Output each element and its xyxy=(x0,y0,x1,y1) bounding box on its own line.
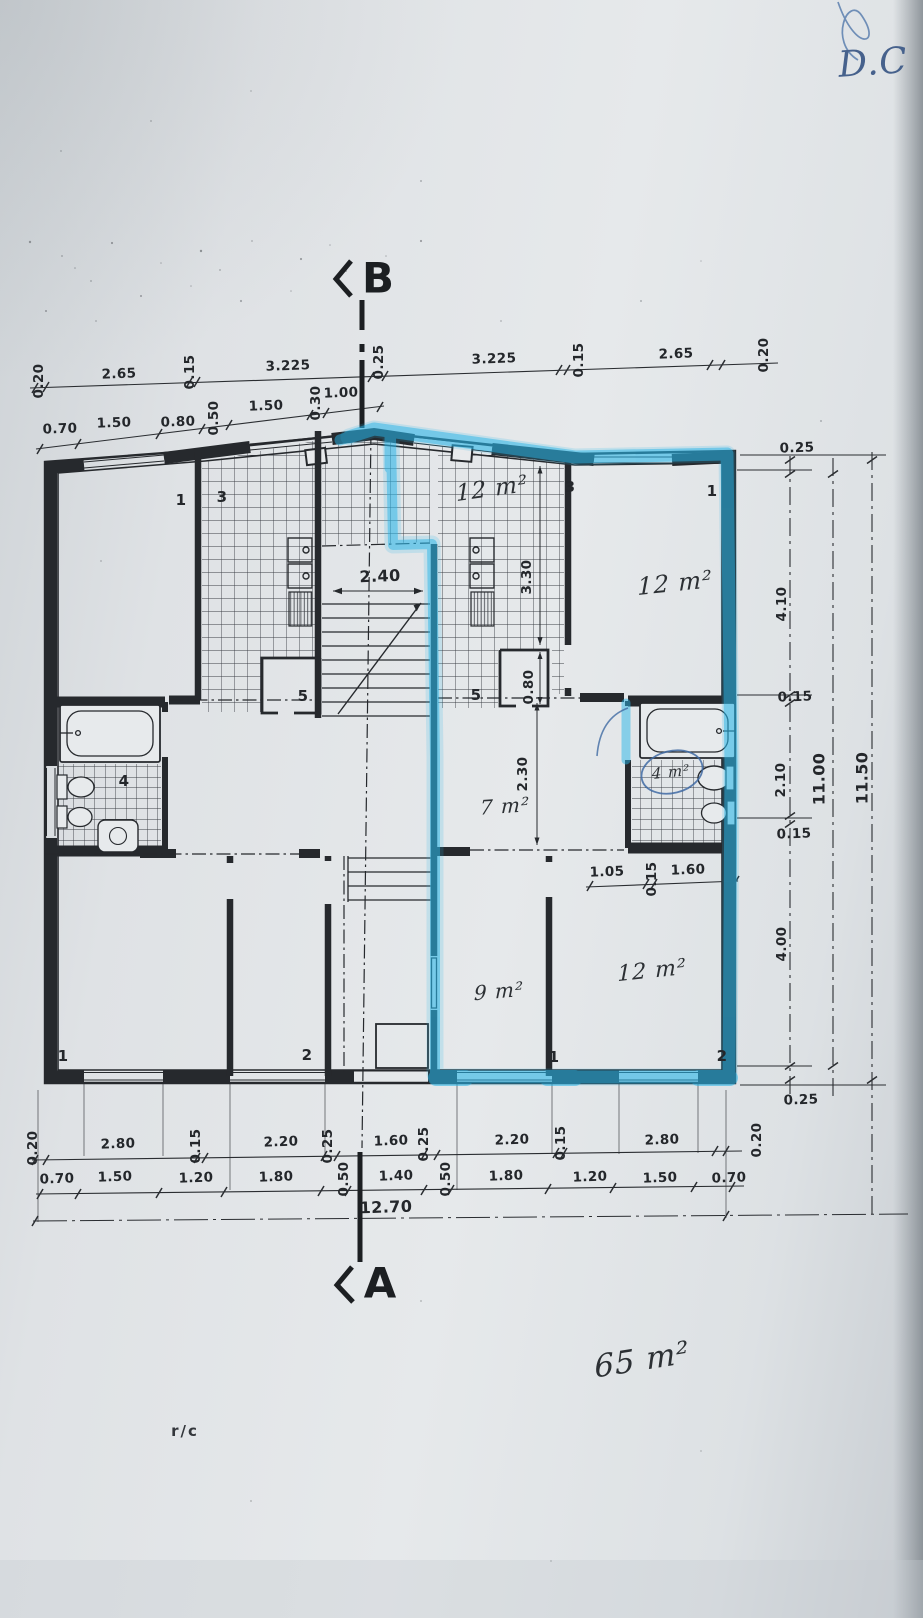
dim-top-outer-7: 2.65 xyxy=(658,345,693,362)
dim-bottom-inner-9: 1.50 xyxy=(642,1169,677,1186)
paper-edge-shadow xyxy=(893,0,923,1618)
dim-bottom-total: 12.70 xyxy=(359,1197,412,1218)
dim-bottom-outer-1: 2.80 xyxy=(100,1135,135,1152)
dim-bottom-outer-3: 2.20 xyxy=(263,1133,298,1150)
marker-left-closet: 5 xyxy=(298,687,309,705)
marker-right-kitchen: 3 xyxy=(565,478,576,496)
dim-hall-depth: 2.30 xyxy=(515,757,531,792)
dim-stair-width: 2.40 xyxy=(359,566,401,586)
dim-bottom-inner-0: 0.70 xyxy=(39,1170,74,1187)
dim-top-inner-6: 1.00 xyxy=(323,384,358,401)
dim-bath-1: 0.15 xyxy=(644,862,660,897)
dim-right-total-inner: 11.00 xyxy=(810,753,829,806)
marker-left-kitchen: 3 xyxy=(217,488,228,506)
dim-bottom-outer-5: 1.60 xyxy=(373,1132,408,1149)
dim-top-outer-6: 0.15 xyxy=(571,343,587,378)
dim-top-inner-2: 0.80 xyxy=(160,413,195,430)
marker-right-living: 1 xyxy=(707,482,718,500)
dim-bottom-inner-6: 0.50 xyxy=(438,1162,454,1197)
dim-bottom-outer-2: 0.15 xyxy=(188,1129,204,1164)
dim-top-outer-2: 0.15 xyxy=(182,355,198,390)
dim-top-outer-4: 0.25 xyxy=(371,345,387,380)
dim-top-inner-5: 0.30 xyxy=(308,386,324,421)
dim-bath-0: 1.05 xyxy=(589,863,624,880)
dim-right-6: 0.25 xyxy=(783,1091,818,1108)
section-marks xyxy=(336,261,362,1302)
dim-bottom-inner-3: 1.80 xyxy=(258,1168,293,1185)
handwritten-bottom-mid-area: 9 m² xyxy=(474,977,524,1005)
dim-bottom-outer-10: 0.20 xyxy=(749,1123,765,1158)
dim-right-4: 0.15 xyxy=(776,825,811,842)
dim-top-outer-3: 3.225 xyxy=(265,357,310,375)
dim-closet-width: 0.80 xyxy=(521,670,537,705)
dim-right-3: 2.10 xyxy=(773,763,789,798)
dim-right-1: 4.10 xyxy=(774,587,790,622)
dim-right-total-outer: 11.50 xyxy=(853,752,872,805)
marker-bottom-left-2: 2 xyxy=(302,1046,313,1064)
handwritten-hall-area: 7 m² xyxy=(480,792,531,820)
marker-bottom-right-2: 2 xyxy=(717,1047,728,1065)
floor-label: r/c xyxy=(171,1422,199,1440)
section-b-label: B xyxy=(362,254,394,303)
dim-bottom-inner-5: 1.40 xyxy=(378,1167,413,1184)
dim-top-inner-4: 1.50 xyxy=(248,397,283,414)
dim-top-outer-8: 0.20 xyxy=(756,338,772,373)
dim-bottom-outer-9: 2.80 xyxy=(644,1131,679,1148)
dim-bottom-outer-8: 0.15 xyxy=(553,1126,569,1161)
floor-plan-photo: 0.20 2.65 0.15 3.225 0.25 3.225 0.15 2.6… xyxy=(0,0,923,1618)
dim-top-outer-1: 2.65 xyxy=(101,365,136,382)
dim-bottom-outer-0: 0.20 xyxy=(25,1131,41,1166)
section-a-arrow-icon xyxy=(337,1267,353,1302)
dim-top-inner-0: 0.70 xyxy=(42,420,77,437)
marker-bottom-right-1: 1 xyxy=(549,1048,560,1066)
dim-bottom-inner-2: 1.20 xyxy=(178,1169,213,1186)
marker-left-bath: 4 xyxy=(119,772,130,790)
marker-right-closet: 5 xyxy=(471,686,482,704)
dim-bottom-outer-4: 0.25 xyxy=(320,1129,336,1164)
paper-bottom-shadow xyxy=(0,1560,923,1618)
dim-top-outer-5: 3.225 xyxy=(471,350,516,368)
dim-bottom-inner-8: 1.20 xyxy=(572,1168,607,1185)
paper-shading xyxy=(0,0,460,380)
marker-left-bedroom: 1 xyxy=(176,491,187,509)
dim-kitchen-depth: 3.30 xyxy=(519,560,535,595)
dim-bath-2: 1.60 xyxy=(670,861,705,878)
dim-right-5: 4.00 xyxy=(774,927,790,962)
handwritten-corner-note: D.C xyxy=(837,40,909,86)
dim-top-inner-1: 1.50 xyxy=(96,414,131,431)
dim-bottom-outer-7: 2.20 xyxy=(494,1131,529,1148)
marker-bottom-left-1: 1 xyxy=(58,1047,69,1065)
dim-bottom-inner-10: 0.70 xyxy=(711,1169,746,1186)
section-a-label: A xyxy=(364,1259,397,1308)
dim-bottom-inner-7: 1.80 xyxy=(488,1167,523,1184)
dim-bottom-inner-4: 0.50 xyxy=(336,1162,352,1197)
dim-right-2: 0.15 xyxy=(777,688,812,705)
dim-right-0: 0.25 xyxy=(779,439,814,456)
floor-plan-drawing xyxy=(0,0,923,1618)
dim-bottom-outer-6: 0.25 xyxy=(416,1127,432,1162)
dim-bottom-inner-1: 1.50 xyxy=(97,1168,132,1185)
dim-top-outer-0: 0.20 xyxy=(31,364,47,399)
dim-top-inner-3: 0.50 xyxy=(206,401,222,436)
